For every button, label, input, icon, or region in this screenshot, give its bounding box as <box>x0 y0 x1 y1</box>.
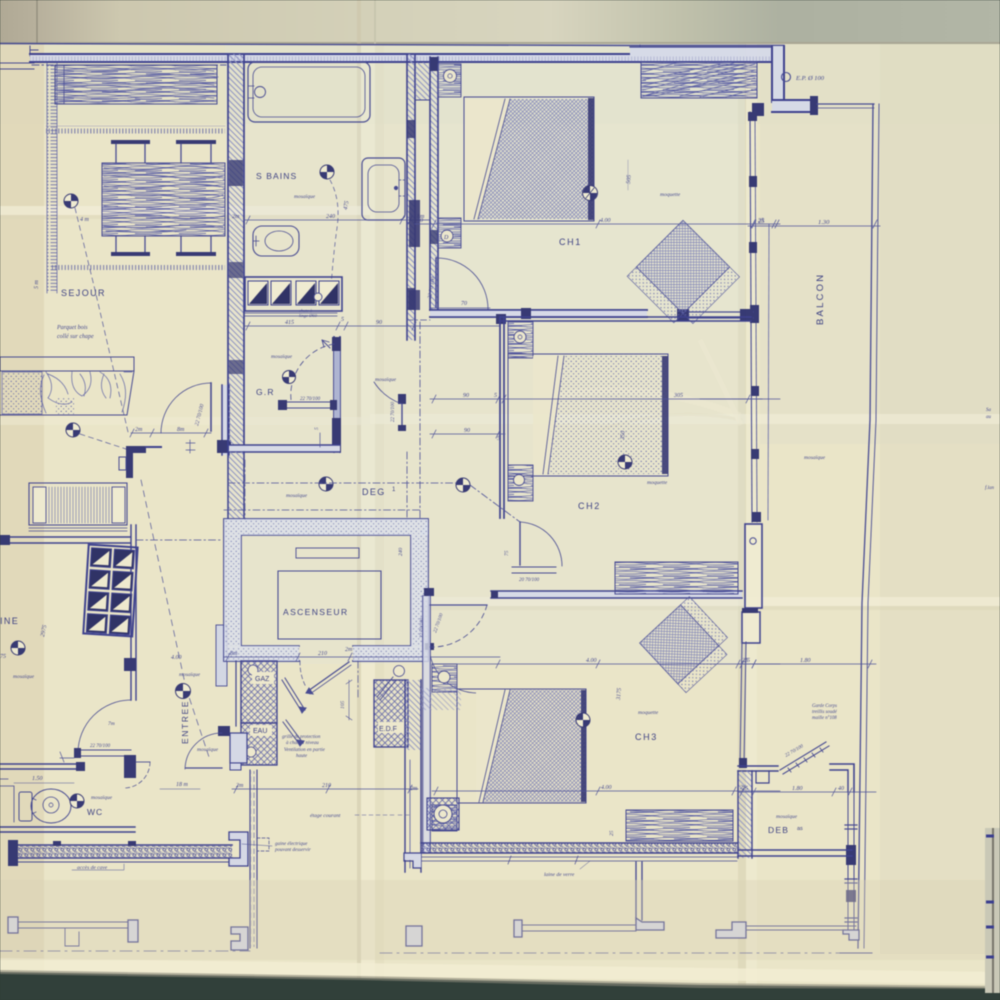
svg-text:305: 305 <box>673 393 683 399</box>
svg-text:4.00: 4.00 <box>171 654 182 661</box>
svg-text:5: 5 <box>341 317 344 323</box>
svg-text:5: 5 <box>314 427 320 430</box>
svg-text:4.00: 4.00 <box>600 217 611 224</box>
svg-text:maille n°108: maille n°108 <box>812 716 837 721</box>
svg-text:E.D.F: E.D.F <box>379 726 397 733</box>
svg-text:mosaïque: mosaïque <box>271 354 293 360</box>
svg-text:25: 25 <box>758 218 764 224</box>
svg-text:90: 90 <box>463 393 469 399</box>
svg-text:CH3: CH3 <box>635 732 658 742</box>
svg-text:Ventilation en partie: Ventilation en partie <box>284 748 326 753</box>
svg-text:25: 25 <box>609 830 615 836</box>
svg-text:4.00: 4.00 <box>586 657 597 664</box>
svg-text:au: au <box>986 415 992 420</box>
svg-text:20 70/100: 20 70/100 <box>519 578 540 583</box>
svg-text:mosaïque: mosaïque <box>286 493 308 499</box>
svg-text:415: 415 <box>285 319 294 326</box>
svg-text:5 m: 5 m <box>34 280 40 290</box>
svg-text:mosaïque: mosaïque <box>776 814 798 820</box>
svg-text:Garde Corps: Garde Corps <box>812 704 837 709</box>
svg-text:40: 40 <box>838 785 844 792</box>
svg-text:moquette: moquette <box>647 480 668 486</box>
svg-text:mosaïque: mosaïque <box>375 377 397 383</box>
svg-text:mosaïque: mosaïque <box>179 672 201 678</box>
svg-text:22 70/100: 22 70/100 <box>391 401 396 422</box>
svg-text:GAZ: GAZ <box>255 676 270 683</box>
svg-text:SEJOUR: SEJOUR <box>61 288 106 298</box>
svg-text:90: 90 <box>464 428 470 434</box>
svg-text:1.80: 1.80 <box>800 658 811 664</box>
svg-text:ENTREE: ENTREE <box>180 700 190 744</box>
svg-text:4.00: 4.00 <box>601 784 612 791</box>
svg-text:90: 90 <box>376 320 382 326</box>
svg-text:Sa: Sa <box>986 408 992 413</box>
svg-text:70: 70 <box>461 301 467 307</box>
svg-text:D: D <box>443 235 449 241</box>
svg-text:S BAINS: S BAINS <box>256 171 297 181</box>
svg-text:8m: 8m <box>230 651 238 657</box>
svg-text:75: 75 <box>0 654 6 660</box>
svg-text:240: 240 <box>326 213 335 220</box>
svg-text:mosaïque: mosaïque <box>294 194 316 200</box>
svg-text:mosaïque: mosaïque <box>13 674 35 680</box>
svg-text:75: 75 <box>504 550 510 556</box>
svg-text:505: 505 <box>626 175 633 184</box>
svg-text:2m: 2m <box>232 214 240 220</box>
svg-text:G.R: G.R <box>256 387 275 397</box>
svg-text:DEG: DEG <box>362 487 386 497</box>
svg-text:105: 105 <box>340 701 346 710</box>
svg-text:22 70/100: 22 70/100 <box>90 744 111 749</box>
svg-text:haute: haute <box>296 754 308 759</box>
svg-text:CH2: CH2 <box>578 501 601 511</box>
svg-text:EAU: EAU <box>253 728 267 735</box>
svg-text:as: as <box>797 826 803 832</box>
svg-text:INE: INE <box>0 616 19 626</box>
svg-text:1.30: 1.30 <box>818 219 830 226</box>
svg-text:2m: 2m <box>345 647 353 653</box>
svg-text:mosaïque: mosaïque <box>91 795 113 801</box>
svg-text:5: 5 <box>494 393 497 399</box>
svg-text:CH1: CH1 <box>559 237 582 247</box>
svg-text:20: 20 <box>417 218 423 224</box>
svg-text:2m: 2m <box>236 783 244 789</box>
svg-text:moquette: moquette <box>638 710 659 716</box>
svg-text:moquette: moquette <box>660 192 681 198</box>
svg-text:WC: WC <box>87 807 103 817</box>
svg-text:mosaïque: mosaïque <box>197 747 219 753</box>
svg-text:à chaque niveau: à chaque niveau <box>286 741 319 746</box>
svg-text:22 70/100: 22 70/100 <box>300 397 321 402</box>
svg-text:8m: 8m <box>177 427 185 433</box>
svg-text:f.lan: f.lan <box>985 486 995 491</box>
svg-text:210: 210 <box>322 783 331 789</box>
svg-text:collé sur chape: collé sur chape <box>57 334 94 340</box>
svg-text:E.P. Ø 100: E.P. Ø 100 <box>795 75 825 82</box>
svg-text:2m: 2m <box>135 427 143 433</box>
svg-text:mosaïque: mosaïque <box>804 455 826 461</box>
svg-text:gaine électrique: gaine électrique <box>275 842 308 847</box>
svg-text:linge Ø60: linge Ø60 <box>299 313 318 318</box>
svg-text:1.80: 1.80 <box>792 786 803 792</box>
svg-text:DEB: DEB <box>768 825 789 835</box>
svg-text:1.50: 1.50 <box>32 776 43 782</box>
svg-text:treillis soudé: treillis soudé <box>812 710 838 715</box>
svg-text:7m: 7m <box>108 721 115 727</box>
svg-text:3175: 3175 <box>616 688 623 701</box>
svg-text:2m: 2m <box>410 786 418 792</box>
svg-text:25: 25 <box>742 658 748 664</box>
svg-text:étage courant: étage courant <box>310 813 341 819</box>
svg-text:25: 25 <box>742 786 748 792</box>
svg-text:5: 5 <box>497 436 500 442</box>
svg-text:pouvant desservir: pouvant desservir <box>274 848 311 853</box>
svg-text:350: 350 <box>620 431 627 441</box>
svg-text:ASCENSEUR: ASCENSEUR <box>283 607 349 617</box>
svg-text:BALCON: BALCON <box>815 273 826 325</box>
svg-text:4 m: 4 m <box>80 216 90 223</box>
svg-text:laine de verre: laine de verre <box>544 872 575 878</box>
svg-text:grille de protection: grille de protection <box>282 735 321 740</box>
svg-text:210: 210 <box>318 651 327 657</box>
svg-text:18 m: 18 m <box>176 782 189 788</box>
svg-text:Parquet bois: Parquet bois <box>56 325 88 331</box>
svg-text:240: 240 <box>397 548 404 557</box>
